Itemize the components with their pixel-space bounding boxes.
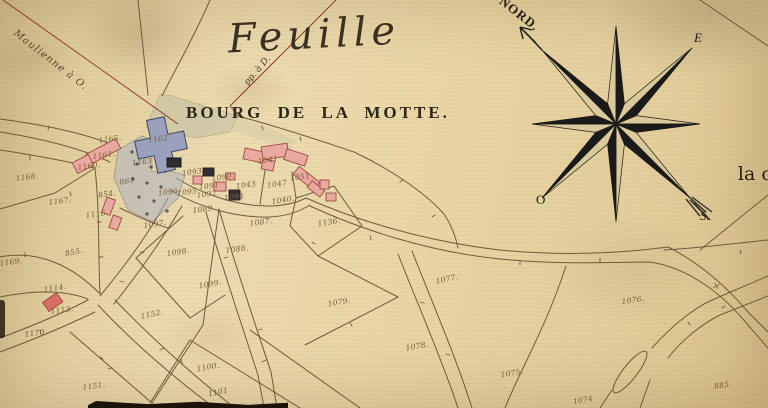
parcel-number-1170: 1170. <box>24 327 48 339</box>
parcel-number-layer: 1165.1161.1160.861854.1116.1167.1168.855… <box>0 0 768 408</box>
parcel-number-1160: 1160. <box>77 160 101 172</box>
parcel-number-854: 854. <box>98 188 117 199</box>
parcel-number-1116: 1116. <box>85 208 109 220</box>
parcel-number-1099: 1099. <box>198 278 222 291</box>
parcel-number-1092: 1092. <box>196 188 220 200</box>
parcel-number-1167: 1167. <box>48 195 72 207</box>
parcel-number-1101: 1101 <box>207 386 229 398</box>
sheet-title: Feuille <box>227 8 401 63</box>
compass-east-label: E <box>694 30 702 46</box>
parcel-number-861: 861 <box>119 175 135 186</box>
parcel-number-1076: 1076. <box>621 294 645 306</box>
parcel-number-885: 885. <box>713 379 732 391</box>
parcel-number-1165: 1165. <box>98 133 122 145</box>
parcel-number-1074: 1074 <box>572 394 594 406</box>
parcel-number-1113: 1113. <box>50 304 74 316</box>
parcel-number-855: 855. <box>64 246 83 258</box>
parcel-number-1114: 1114. <box>43 282 67 294</box>
cadastral-map: 1165.1161.1160.861854.1116.1167.1168.855… <box>0 0 768 408</box>
compass-south-label: S. <box>700 208 710 224</box>
parcel-number-1077: 1077. <box>435 272 459 286</box>
parcel-number-1089: 1089. <box>192 203 216 215</box>
parcel-number-1098: 1098. <box>166 246 190 258</box>
parcel-number-1047: 1047 <box>266 178 287 190</box>
parcel-number-1169: 1169. <box>0 256 23 268</box>
parcel-number-1096: 1096 <box>157 186 178 198</box>
parcel-number-1093: 1093 <box>181 166 202 178</box>
parcel-number-1162: 1162 <box>147 133 168 145</box>
parcel-number-1161: 1161. <box>92 149 116 161</box>
parcel-number-1087: 1087. <box>249 216 273 228</box>
parcel-number-1040: 1040. <box>271 194 295 206</box>
parcel-number-1078: 1078. <box>405 340 429 353</box>
parcel-number-1136: 1136. <box>317 216 341 229</box>
place-title: BOURG DE LA MOTTE. <box>186 103 450 123</box>
parcel-number-1168: 1168. <box>15 171 39 183</box>
parcel-number-1100: 1100. <box>196 361 220 374</box>
scan-edge-artifact-left <box>0 300 5 338</box>
parcel-number-1075: 1075. <box>500 367 524 380</box>
compass-west-label: O <box>536 192 545 208</box>
parcel-number-1043: 1043 <box>235 179 256 191</box>
parcel-number-1088: 1088. <box>225 243 249 255</box>
parcel-number-1151: 1151. <box>82 380 106 392</box>
right-edge-text-fragment: la c <box>738 163 768 185</box>
parcel-number-1163: 1163 <box>131 156 152 168</box>
parcel-number-1095: 1095 <box>176 186 197 198</box>
parcel-number-1051: 1051 <box>289 171 310 183</box>
parcel-number-1041: 1041 <box>257 154 278 166</box>
parcel-number-1094: 1094 <box>223 191 244 203</box>
parcel-number-1152: 1152. <box>140 307 164 321</box>
parcel-number-1097: 1097. <box>143 218 167 230</box>
parcel-number-1079: 1079. <box>327 296 351 309</box>
